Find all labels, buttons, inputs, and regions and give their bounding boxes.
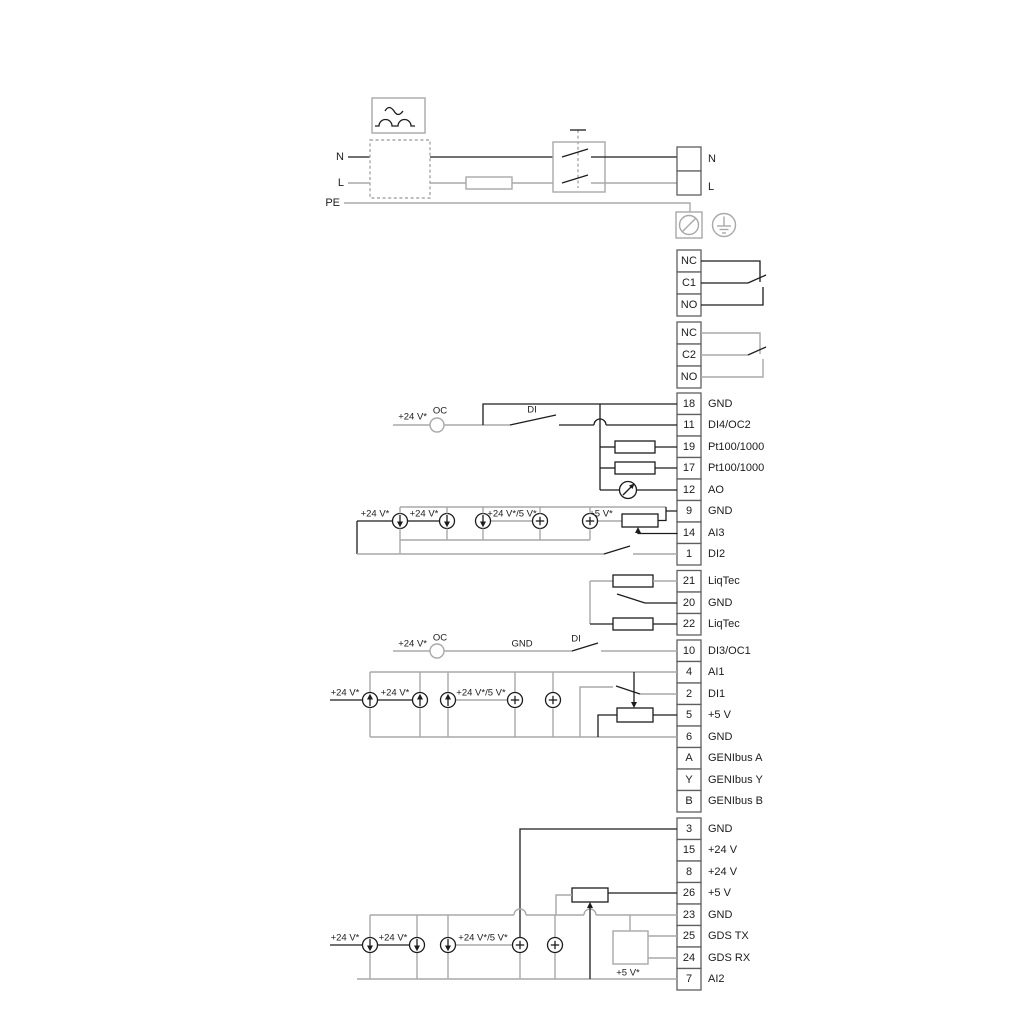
terminal-number: NC bbox=[681, 255, 697, 267]
terminal-number: C1 bbox=[682, 277, 696, 289]
main-switch bbox=[553, 130, 677, 192]
terminal-number: 21 bbox=[683, 575, 695, 587]
rcd-box bbox=[370, 140, 430, 198]
fuse bbox=[466, 177, 512, 189]
supply-label: +24 V* bbox=[361, 509, 390, 520]
liqtec-sensor bbox=[613, 575, 653, 587]
terminal-label: GDS TX bbox=[708, 930, 749, 942]
diagram-canvas: N L PE N L bbox=[0, 0, 1024, 1024]
wiper-wire bbox=[638, 532, 677, 534]
di1-switch-blade bbox=[616, 686, 640, 694]
terminal-number: NO bbox=[681, 371, 698, 383]
io-group-bottom: 3 15 8 26 23 25 24 7 GND +24 V +24 V +5 … bbox=[330, 818, 751, 990]
potentiometer bbox=[622, 514, 677, 534]
label-n-left: N bbox=[336, 151, 344, 163]
terminal-number: B bbox=[685, 795, 692, 807]
terminal-number: 4 bbox=[686, 666, 692, 678]
terminal-number: 25 bbox=[683, 930, 695, 942]
terminal-label: Pt100/1000 bbox=[708, 441, 764, 453]
di4-top-wire bbox=[483, 404, 677, 425]
terminal-label: GENIbus A bbox=[708, 752, 763, 764]
terminal-number: 5 bbox=[686, 709, 692, 721]
relay2-nc-wire bbox=[701, 333, 760, 354]
label-pe-left: PE bbox=[325, 197, 340, 209]
terminal-number: Y bbox=[685, 774, 693, 786]
liqtec-group: 21 20 22 LiqTec GND LiqTec bbox=[590, 571, 740, 636]
terminal-number: 2 bbox=[686, 688, 692, 700]
terminal-number: 26 bbox=[683, 887, 695, 899]
current-source-down-icon bbox=[476, 514, 491, 529]
voltage-source-icon bbox=[546, 693, 561, 708]
di-label: DI bbox=[527, 405, 537, 416]
terminal-number: 9 bbox=[686, 505, 692, 517]
terminal-number: 22 bbox=[683, 618, 695, 630]
di4-switch-blade bbox=[510, 415, 556, 425]
mains-waveform-box bbox=[372, 98, 425, 133]
relay2-no-wire bbox=[701, 359, 763, 377]
voltage-source-icon bbox=[533, 514, 548, 529]
open-collector-icon bbox=[430, 418, 444, 432]
terminal-number: C2 bbox=[682, 349, 696, 361]
terminal-label: GND bbox=[708, 597, 733, 609]
relay2-contact-blade bbox=[748, 347, 766, 355]
terminal-label: AO bbox=[708, 484, 724, 496]
supply-label: +24 V* bbox=[381, 688, 410, 699]
terminal-label: GND bbox=[708, 398, 733, 410]
liqtec-sensor bbox=[613, 618, 653, 630]
oc-label: OC bbox=[433, 406, 447, 417]
current-source-down-icon bbox=[363, 938, 378, 953]
terminal-label: DI1 bbox=[708, 688, 725, 700]
terminal-label: LiqTec bbox=[708, 575, 740, 587]
di-label: DI bbox=[571, 634, 581, 645]
terminal-number: 23 bbox=[683, 909, 695, 921]
supply-label: +24 V*/5 V* bbox=[487, 509, 537, 520]
current-source-up-icon bbox=[413, 693, 428, 708]
io-group-top: 18 11 19 17 12 9 14 1 GND DI4/OC2 Pt100/… bbox=[357, 393, 764, 565]
terminal-number: 1 bbox=[686, 548, 692, 560]
relay1-nc-wire bbox=[701, 261, 760, 282]
terminal-number: 14 bbox=[683, 527, 695, 539]
terminal-label: +24 V bbox=[708, 866, 738, 878]
analog-output-meter-icon bbox=[620, 482, 637, 499]
relay1-no-wire bbox=[701, 287, 763, 305]
pt100-sensor bbox=[615, 441, 655, 453]
io-group-middle: 10 4 2 5 6 A Y B DI3/OC1 AI1 DI1 +5 V GN… bbox=[330, 633, 763, 813]
voltage-source-icon bbox=[513, 938, 528, 953]
terminal-number: 10 bbox=[683, 645, 695, 657]
label-n-right: N bbox=[708, 153, 716, 165]
terminal-label: +24 V bbox=[708, 844, 738, 856]
voltage-source-icon bbox=[508, 693, 523, 708]
terminal-number: 15 bbox=[683, 844, 695, 856]
label-l-left: L bbox=[338, 177, 344, 189]
label-l-right: L bbox=[708, 181, 714, 193]
terminal-number: NC bbox=[681, 327, 697, 339]
terminal-label: +5 V bbox=[708, 887, 732, 899]
potentiometer bbox=[598, 672, 677, 737]
supply-label: +5 V* bbox=[616, 968, 640, 979]
terminal-label: GENIbus B bbox=[708, 795, 763, 807]
supply-label: +24 V*/5 V* bbox=[456, 688, 506, 699]
current-source-up-icon bbox=[441, 693, 456, 708]
gnd-feed-wire bbox=[520, 829, 677, 938]
supply-label: +24 V*/5 V* bbox=[458, 933, 508, 944]
relay1-section: NC C1 NO bbox=[677, 250, 766, 316]
gds-sensor-box: +5 V* bbox=[613, 915, 677, 979]
pe-wire bbox=[344, 203, 690, 212]
mains-terminal-block: N L bbox=[677, 147, 716, 195]
terminal-number: 18 bbox=[683, 398, 695, 410]
option-rail-bottom bbox=[400, 529, 590, 555]
terminal-label: AI3 bbox=[708, 527, 725, 539]
terminal-number: 8 bbox=[686, 866, 692, 878]
ai1-rail-top bbox=[370, 672, 677, 694]
supply-label: +24 V* bbox=[398, 639, 427, 650]
terminal-label: GND bbox=[708, 505, 733, 517]
ai1-source-options: +24 V* +24 V* +24 V*/5 V* bbox=[330, 672, 677, 737]
pt100-sensor bbox=[615, 462, 655, 474]
liqtec-blade bbox=[617, 594, 645, 603]
terminal-number: 6 bbox=[686, 731, 692, 743]
voltage-source-icon bbox=[548, 938, 563, 953]
supply-label: +24 V* bbox=[398, 412, 427, 423]
terminal-number: 7 bbox=[686, 973, 692, 985]
terminal-label: AI1 bbox=[708, 666, 725, 678]
terminal-number: 24 bbox=[683, 952, 695, 964]
current-source-down-icon bbox=[410, 938, 425, 953]
earth-symbol-icon bbox=[713, 214, 736, 237]
di2-switch-blade bbox=[604, 546, 630, 554]
terminal-number: 3 bbox=[686, 823, 692, 835]
ai3-source-options: +24 V* +24 V* +24 V*/5 V* +5 V* bbox=[357, 507, 677, 554]
ai2-source-options: +24 V* +24 V* +24 V*/5 V* bbox=[330, 933, 563, 953]
terminal-label: Pt100/1000 bbox=[708, 462, 764, 474]
supply-label: +24 V* bbox=[331, 933, 360, 944]
current-source-down-icon bbox=[441, 938, 456, 953]
gnd-label: GND bbox=[511, 639, 532, 650]
supply-label: +24 V* bbox=[410, 509, 439, 520]
terminal-label: GDS RX bbox=[708, 952, 751, 964]
terminal-label: GENIbus Y bbox=[708, 774, 763, 786]
power-section: N L PE N L bbox=[325, 98, 735, 238]
terminal-label: DI4/OC2 bbox=[708, 419, 751, 431]
terminal-label: +5 V bbox=[708, 709, 732, 721]
terminal-label: AI2 bbox=[708, 973, 725, 985]
terminal-number: 11 bbox=[683, 419, 694, 431]
oc-label: OC bbox=[433, 633, 447, 644]
relay2-section: NC C2 NO bbox=[677, 322, 766, 388]
terminal-label: GND bbox=[708, 909, 733, 921]
voltage-source-icon bbox=[583, 514, 598, 529]
terminal-number: NO bbox=[681, 299, 698, 311]
terminal-label: DI3/OC1 bbox=[708, 645, 751, 657]
terminal-label: DI2 bbox=[708, 548, 725, 560]
current-source-down-icon bbox=[393, 514, 408, 529]
supply-label: +24 V* bbox=[379, 933, 408, 944]
terminal-label: LiqTec bbox=[708, 618, 740, 630]
terminal-number: 12 bbox=[683, 484, 695, 496]
current-source-down-icon bbox=[440, 514, 455, 529]
terminal-number: 20 bbox=[683, 597, 695, 609]
open-collector-icon bbox=[430, 644, 444, 658]
terminal-number: 19 bbox=[683, 441, 695, 453]
terminal-number: 17 bbox=[683, 462, 695, 474]
terminal-label: GND bbox=[708, 823, 733, 835]
supply-label: +24 V* bbox=[331, 688, 360, 699]
relay1-contact-blade bbox=[748, 275, 766, 283]
pe-screw-terminal bbox=[676, 212, 702, 238]
wiring-diagram: N L PE N L bbox=[0, 0, 1024, 1024]
terminal-number: A bbox=[685, 752, 693, 764]
current-source-up-icon bbox=[363, 693, 378, 708]
terminal-label: GND bbox=[708, 731, 733, 743]
